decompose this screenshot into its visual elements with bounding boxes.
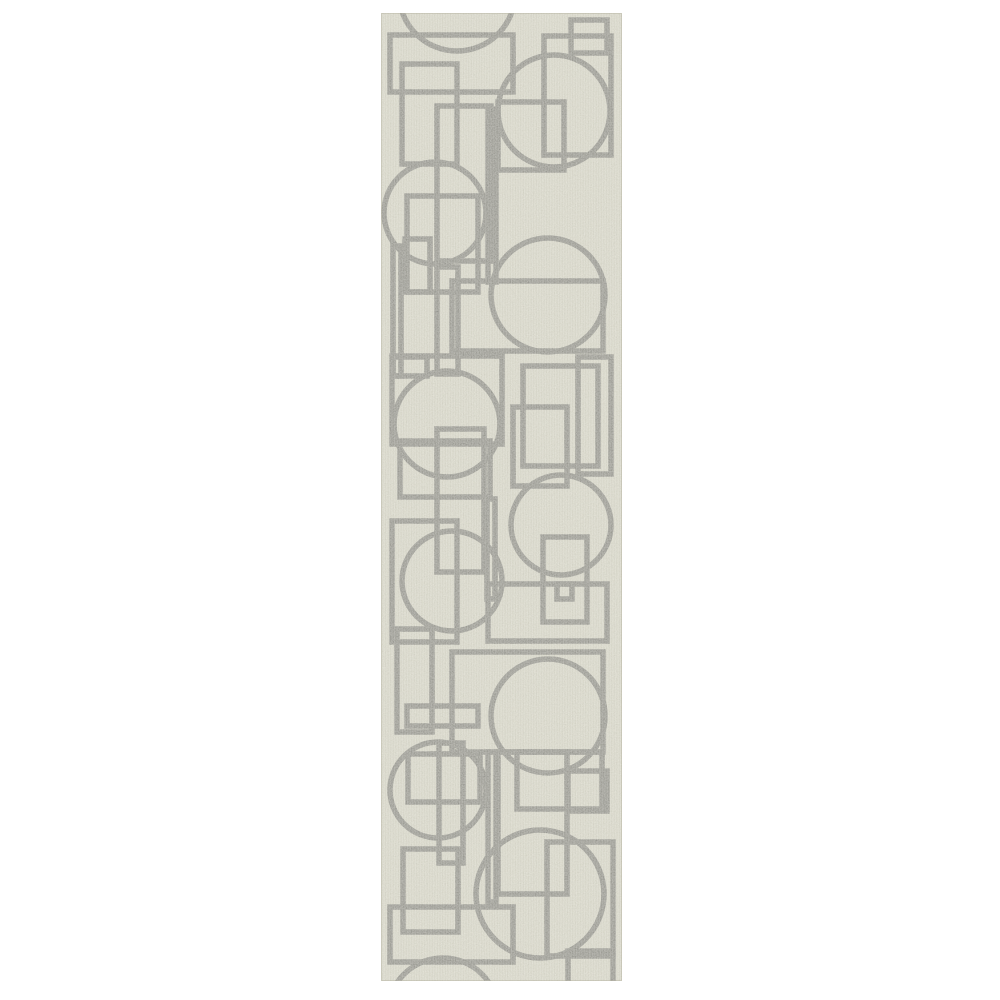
rug-runner-photo [381, 13, 622, 981]
fabric-noise-dark [381, 13, 622, 981]
product-photo-canvas [0, 0, 1000, 1000]
rug-pattern-svg [381, 13, 622, 981]
